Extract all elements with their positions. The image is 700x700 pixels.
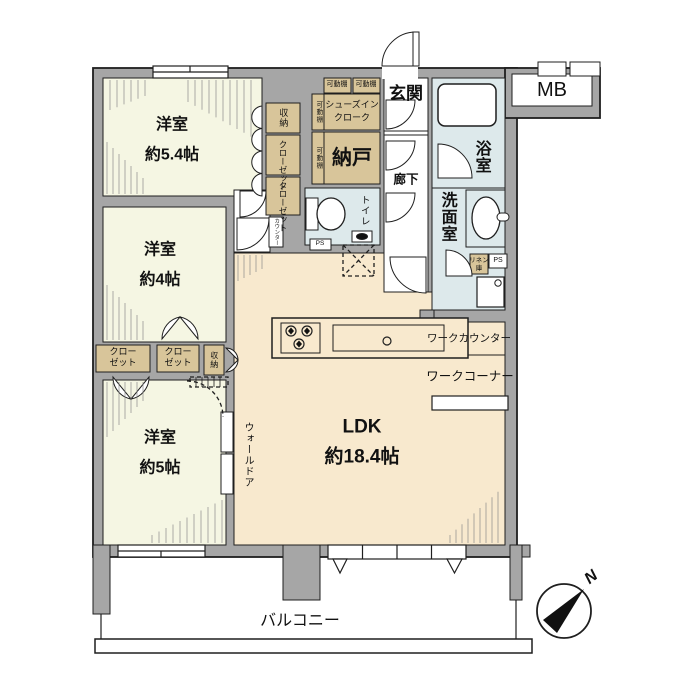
bathroom-label: 浴室 [471, 140, 490, 174]
linen-label-line1: リネン [469, 257, 489, 265]
north-label: N [582, 567, 602, 588]
floor-plan: N 洋室 約5.4帖 洋室 約4帖 洋室 約5帖 LDK 約18.4帖 納戸 シ… [0, 0, 700, 700]
ps-label-toilet: PS [316, 240, 325, 248]
balcony-railing [95, 639, 532, 653]
wall-door-label: ウォールドア [241, 422, 253, 488]
toilet-paper-roll [357, 234, 368, 240]
work-counter-label: ワークカウンター [427, 333, 511, 346]
linen-label-line2: 庫 [476, 265, 483, 273]
bathtub [438, 84, 496, 126]
bedroom5-name: 洋室 [144, 428, 176, 447]
closet-row2-line2: ゼット [164, 358, 191, 369]
shelf-label-2: 可動棚 [356, 81, 377, 89]
sic-label-line1: シューズイン [325, 100, 379, 111]
wall-door-panel-1 [221, 412, 233, 452]
bedroom4-size: 約4帖 [140, 270, 181, 289]
mb-top-box-1 [538, 62, 566, 76]
shelf-label-sic-strip: 可動棚 [314, 101, 322, 124]
sash-marker-2 [447, 559, 462, 573]
sash-marker-1 [333, 559, 347, 573]
ldk-size: 約18.4帖 [325, 447, 400, 470]
bedroom54-size: 約5.4帖 [145, 145, 199, 164]
ldk-name: LDK [342, 417, 381, 440]
rouka-label: 廊下 [393, 173, 418, 188]
work-desk [432, 396, 508, 410]
entrance-opening [382, 66, 418, 79]
washer-drain [495, 280, 501, 286]
mb-top-box-2 [570, 62, 600, 76]
entrance-door [382, 32, 416, 66]
nando-label: 納戸 [332, 146, 372, 170]
shuno-column-label: 収納 [278, 108, 289, 128]
shuno-row-label: 収納 [209, 351, 219, 369]
bedroom4-name: 洋室 [144, 240, 176, 259]
shelf-label-nando-strip: 可動棚 [314, 147, 322, 170]
genkan-label: 玄関 [389, 84, 423, 104]
balcony-label: バルコニー [260, 611, 340, 630]
toilet-bowl [317, 198, 345, 230]
balcony [93, 545, 532, 653]
closet-column-label-1: クローゼット [278, 140, 288, 172]
ps-label-washroom: PS [493, 257, 502, 265]
closet-row1-line2: ゼット [109, 358, 136, 369]
balcony-pillar-left [93, 545, 110, 614]
compass: N [537, 567, 601, 638]
balcony-pillar-right [510, 545, 522, 600]
sic-label-line2: クローク [334, 113, 370, 124]
work-corner-label: ワークコーナー [426, 370, 514, 385]
bedroom54-floor [103, 78, 262, 196]
washbasin [472, 197, 500, 239]
toilet-tank [306, 198, 318, 230]
shelf-label-1: 可動棚 [327, 81, 348, 89]
closet-row2-line1: クロー [164, 347, 191, 358]
faucet [497, 213, 509, 221]
mb-label: MB [537, 78, 567, 102]
bedroom5-size: 約5帖 [140, 458, 181, 477]
washroom-label: 洗面室 [437, 192, 456, 243]
entrance-door-leaf [413, 32, 419, 66]
closet-column-label-2: クローゼット [278, 181, 288, 213]
balcony-pillar-center [283, 545, 320, 600]
bedroom54-name: 洋室 [156, 115, 188, 134]
wall-door-panel-2 [221, 454, 233, 494]
closet-row1-line1: クロー [109, 347, 136, 358]
toilet-label: トイレ [358, 195, 369, 227]
